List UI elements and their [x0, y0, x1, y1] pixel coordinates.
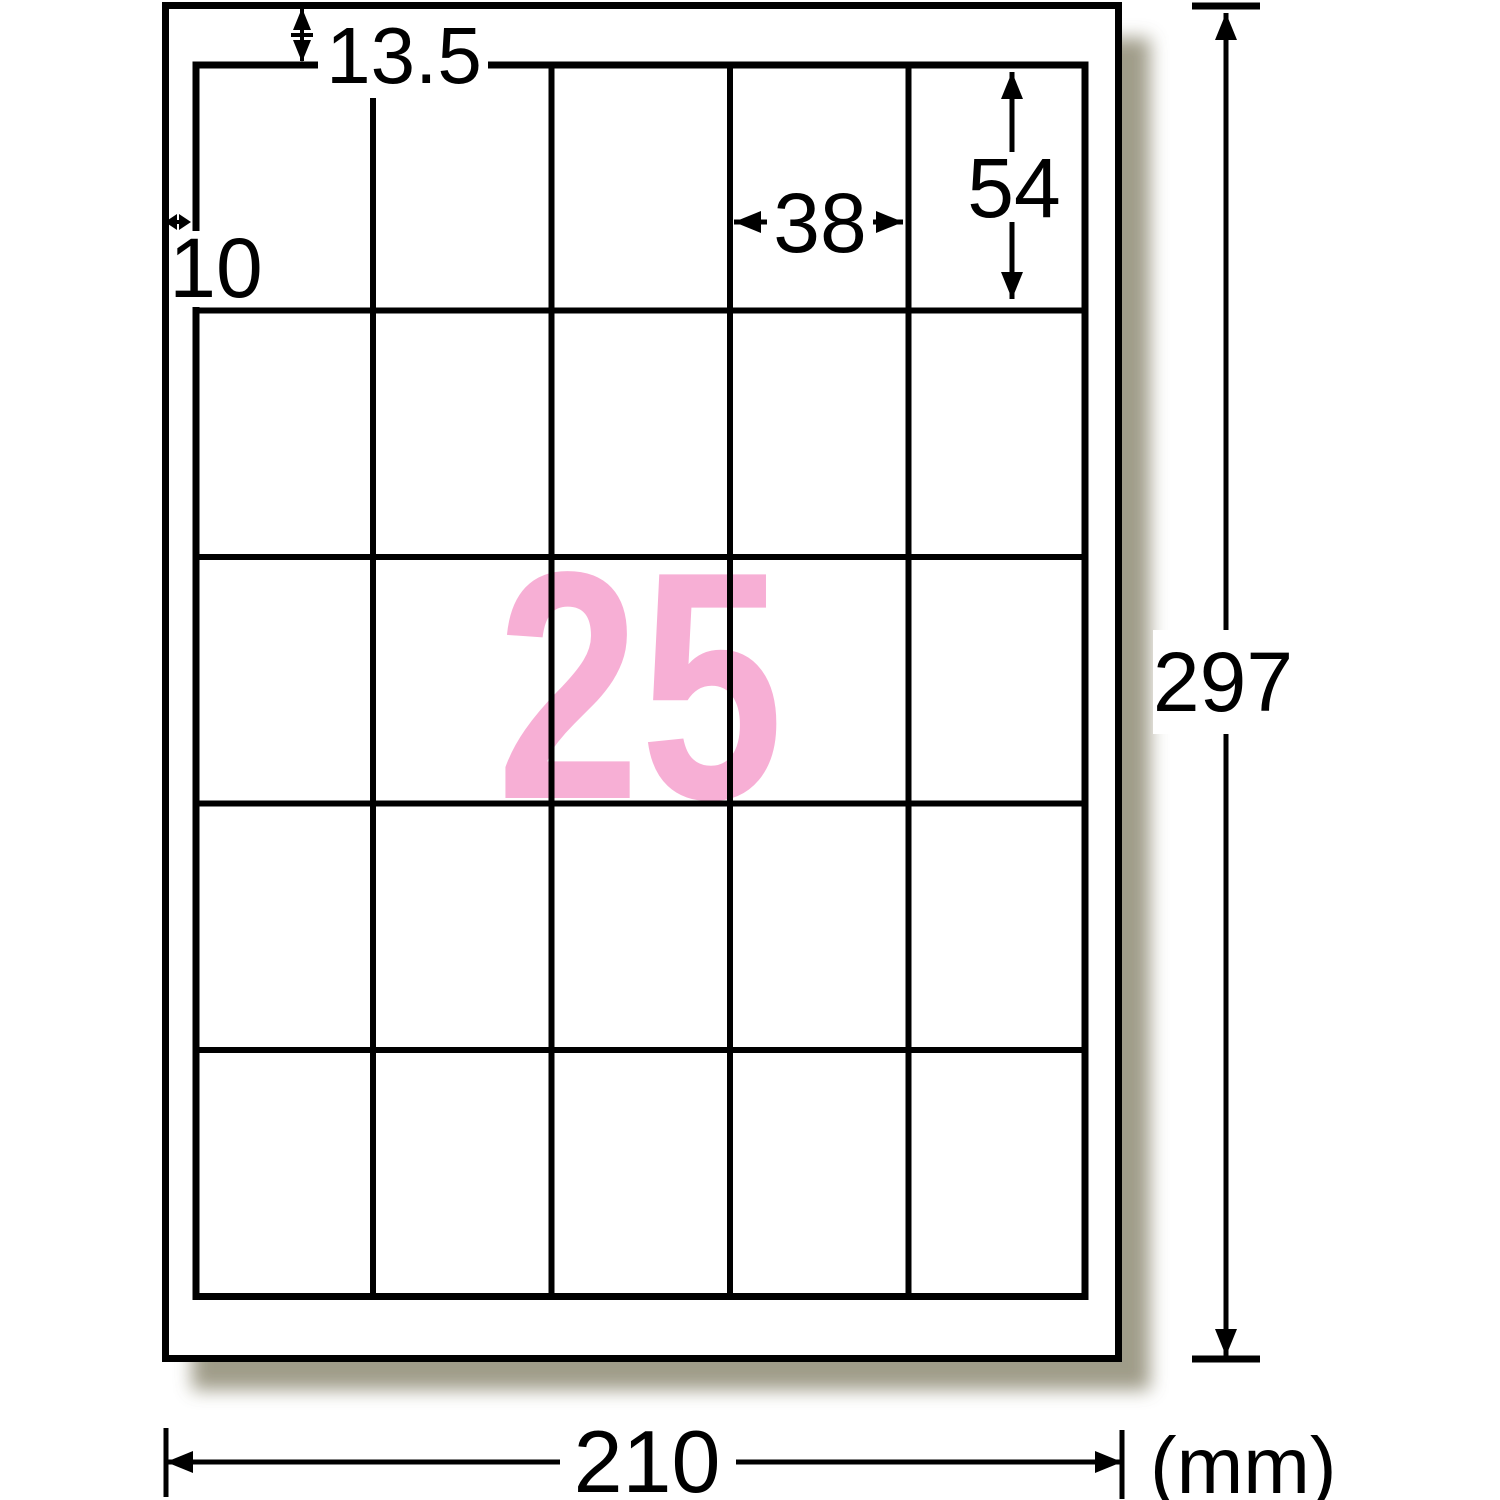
top-margin-value: 13.5	[326, 11, 482, 100]
unit-label: (mm)	[1150, 1421, 1337, 1500]
page-width-value: 210	[574, 1412, 721, 1500]
page-height-value: 297	[1153, 635, 1293, 729]
label-height-value: 54	[967, 141, 1060, 235]
dim-top-margin: 13.5	[291, 8, 488, 100]
label-width-value: 38	[773, 176, 866, 270]
dim-left-margin: 10	[165, 214, 263, 315]
diagram-canvas: 25 13.5 10 38 54	[0, 0, 1500, 1500]
dim-page-width: 210	[166, 1412, 1122, 1500]
label-sheet-dimension-diagram: 25 13.5 10 38 54	[0, 0, 1500, 1500]
dim-page-height: 297	[1153, 6, 1299, 1359]
left-margin-value: 10	[169, 221, 262, 315]
